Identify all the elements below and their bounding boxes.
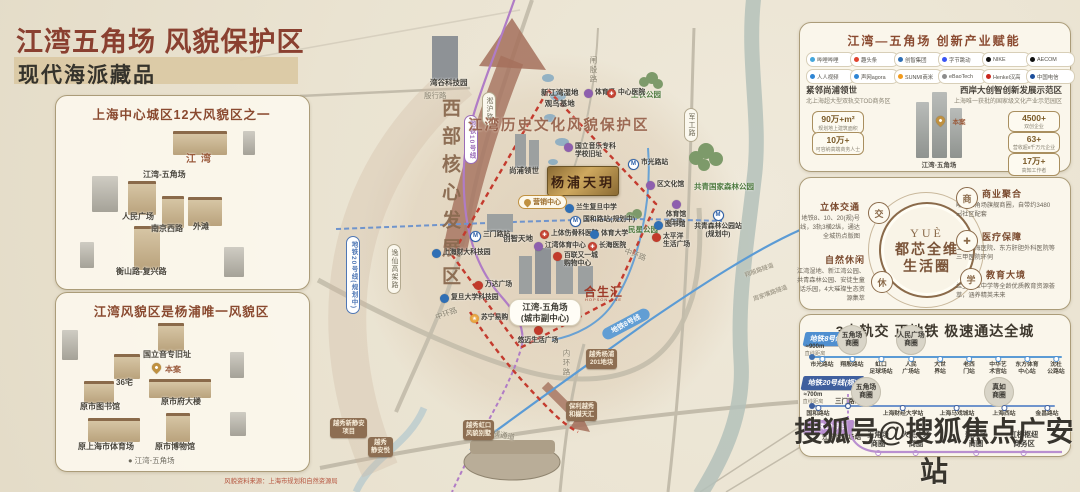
watermark: 搜狐号@搜狐焦点广安站 [788,410,1080,490]
line20-terminal [809,403,815,409]
poster: 殷行路闸殷路军工路淞沪路逸仙高架路中环路中环路内环路北横通道翔殷路隧道周家嘴路隧… [0,0,1080,492]
branch-dot [846,404,851,409]
line8-terminal [809,354,815,360]
